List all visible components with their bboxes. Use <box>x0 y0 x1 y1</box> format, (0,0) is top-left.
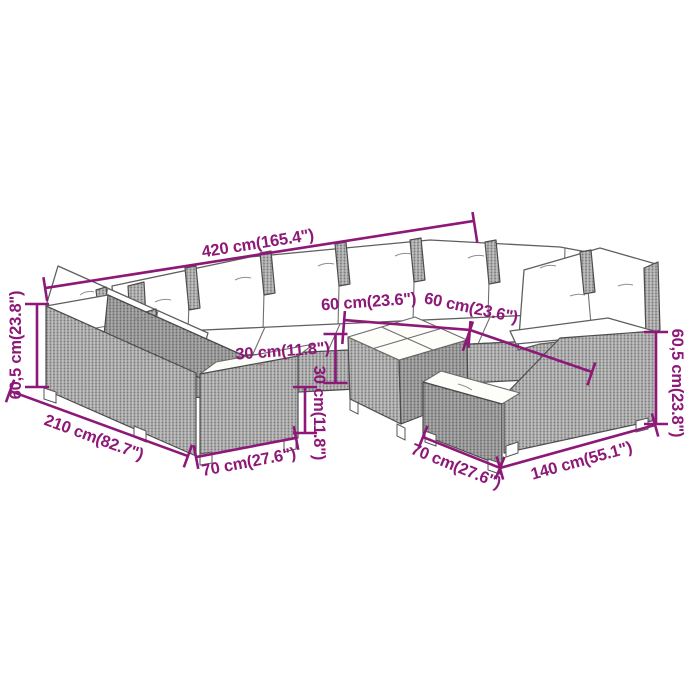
product-dimension-diagram: 420 cm(165.4") 60,5 cm(23.8") 210 cm(82.… <box>0 0 700 700</box>
dim-seat-height-label: 30 cm(11.8") <box>310 366 328 460</box>
dim-right-height-label: 60,5 cm(23.8") <box>668 329 686 438</box>
dim-left-height-label: 60,5 cm(23.8") <box>7 291 25 400</box>
rattan-post <box>644 262 660 336</box>
